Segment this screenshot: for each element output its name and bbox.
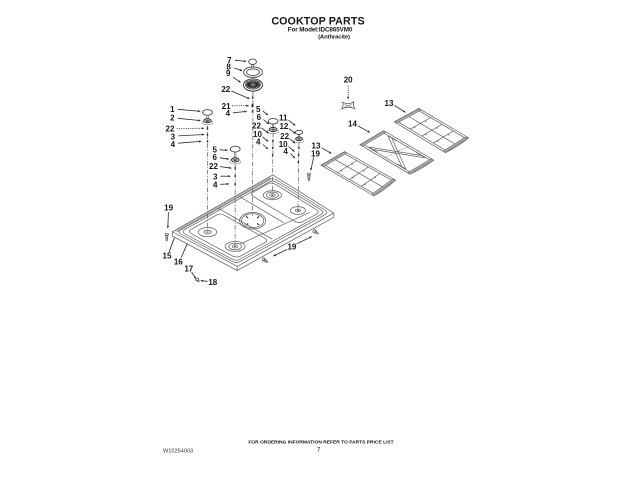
svg-text:17: 17 <box>184 264 193 273</box>
svg-text:(Anthracite): (Anthracite) <box>318 34 350 40</box>
svg-text:20: 20 <box>344 75 353 84</box>
svg-text:For Model:IDC865VM0: For Model:IDC865VM0 <box>288 26 353 33</box>
svg-text:9: 9 <box>226 69 231 78</box>
svg-text:15: 15 <box>163 251 172 260</box>
svg-text:12: 12 <box>279 122 288 131</box>
svg-text:4: 4 <box>226 109 231 118</box>
svg-text:4: 4 <box>171 140 176 149</box>
svg-text:6: 6 <box>212 153 217 162</box>
svg-text:1: 1 <box>170 105 175 114</box>
svg-text:22: 22 <box>209 162 218 171</box>
svg-text:2: 2 <box>170 114 175 123</box>
svg-text:22: 22 <box>221 85 230 94</box>
svg-text:22: 22 <box>252 121 261 130</box>
svg-text:4: 4 <box>213 181 218 190</box>
svg-text:19: 19 <box>287 243 296 252</box>
svg-text:4: 4 <box>256 138 261 147</box>
svg-text:4: 4 <box>283 147 288 156</box>
svg-text:16: 16 <box>174 258 183 267</box>
svg-text:14: 14 <box>348 119 357 128</box>
svg-text:19: 19 <box>311 149 320 158</box>
svg-text:W10254003: W10254003 <box>163 449 193 455</box>
svg-text:13: 13 <box>385 99 394 108</box>
svg-text:19: 19 <box>164 204 173 213</box>
svg-text:7: 7 <box>317 446 321 453</box>
svg-text:18: 18 <box>208 278 217 287</box>
svg-text:FOR ORDERING INFORMATION REFER: FOR ORDERING INFORMATION REFER TO PARTS … <box>248 440 393 446</box>
